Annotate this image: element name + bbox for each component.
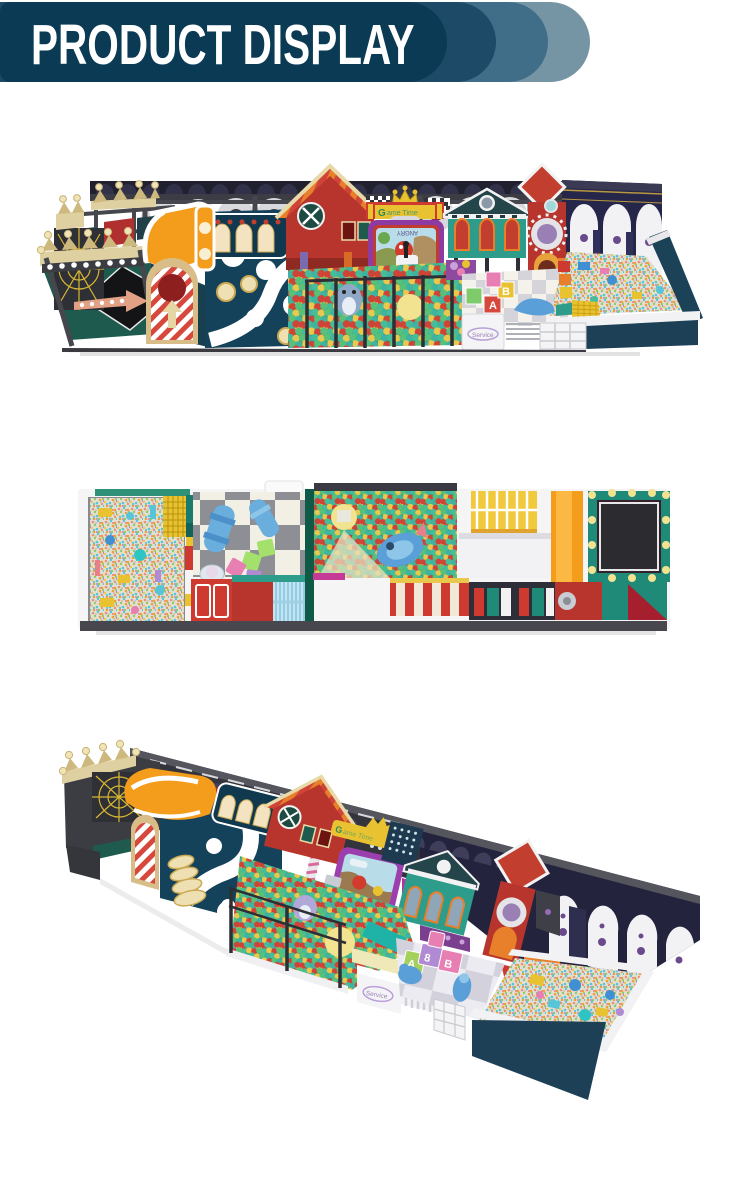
svg-text:ANGRY: ANGRY (397, 229, 418, 235)
svg-text:ame Time: ame Time (387, 210, 418, 217)
svg-text:G: G (378, 208, 386, 219)
svg-text:B: B (502, 286, 510, 298)
svg-text:Service: Service (472, 332, 494, 339)
svg-text:A: A (489, 300, 497, 312)
